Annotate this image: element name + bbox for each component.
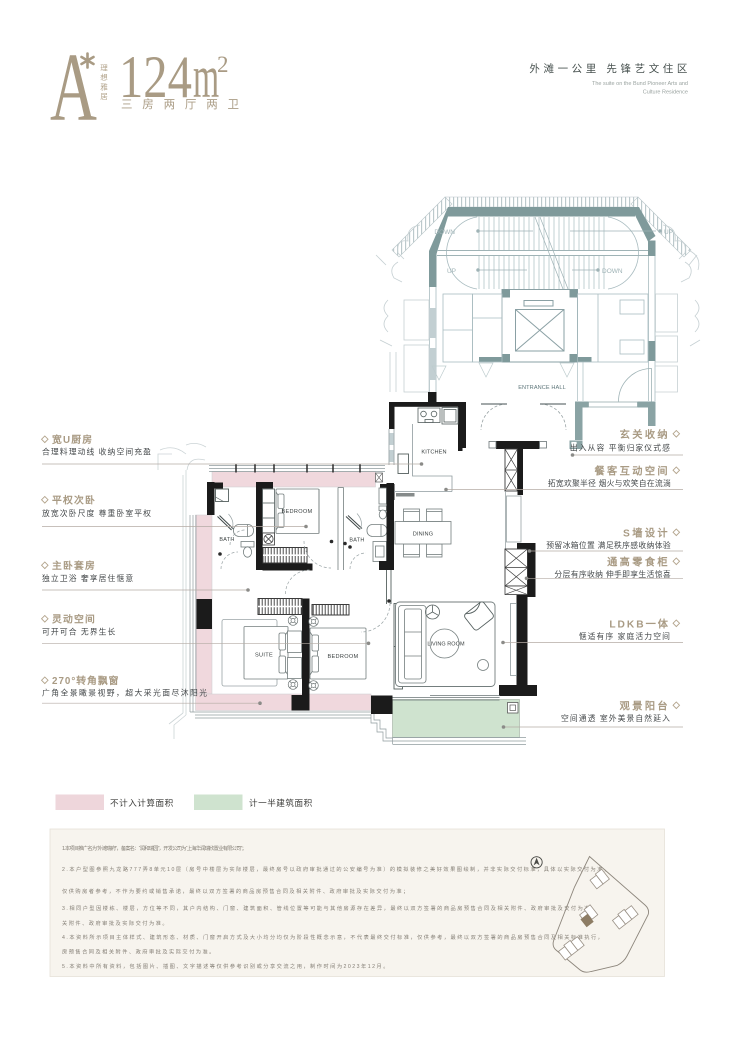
svg-text:LIVING ROOM: LIVING ROOM xyxy=(427,642,465,648)
svg-text:UP: UP xyxy=(664,229,673,236)
svg-text:合理料理动线 收纳空间充盈: 合理料理动线 收纳空间充盈 xyxy=(42,447,152,457)
svg-text:预留冰箱位置 满足秩序感收纳体验: 预留冰箱位置 满足秩序感收纳体验 xyxy=(546,540,671,550)
svg-text:3.相同户型因楼栋、楼层，方位等不同，其户内结构、门窗、建筑: 3.相同户型因楼栋、楼层，方位等不同，其户内结构、门窗、建筑面积、管线位置等可能… xyxy=(62,904,598,912)
svg-text:出入从容 平衡归家仪式感: 出入从容 平衡归家仪式感 xyxy=(570,443,671,453)
svg-text:1.本项目推广名为“外滩瑞府”，备案名：“润和瑞园”，开发公: 1.本项目推广名为“外滩瑞府”，备案名：“润和瑞园”，开发公司为“上海华润瑞欣置… xyxy=(62,844,246,852)
svg-text:独立卫浴 奢享居住惬意: 独立卫浴 奢享居住惬意 xyxy=(42,573,134,583)
svg-text:通高零食柜: 通高零食柜 xyxy=(607,556,670,569)
svg-text:ENTRANCE HALL: ENTRANCE HALL xyxy=(518,385,566,391)
svg-text:A: A xyxy=(50,33,97,141)
svg-text:理想雅居: 理想雅居 xyxy=(99,64,108,102)
svg-text:S墙设计: S墙设计 xyxy=(623,527,670,540)
svg-text:宽U厨房: 宽U厨房 xyxy=(51,433,93,446)
svg-text:外滩一公里 先锋艺文住区: 外滩一公里 先锋艺文住区 xyxy=(529,62,691,75)
svg-text:观景阳台: 观景阳台 xyxy=(620,700,670,713)
svg-text:4.本资料所示项目主体样式、建筑形态、材质、门窗开启方式及大: 4.本资料所示项目主体样式、建筑形态、材质、门窗开启方式及大小均分均仅为阶段性概… xyxy=(62,933,604,941)
svg-text:放宽次卧尺度 尊重卧室平权: 放宽次卧尺度 尊重卧室平权 xyxy=(42,508,152,518)
svg-text:BATH: BATH xyxy=(349,538,364,544)
svg-text:DOWN: DOWN xyxy=(602,268,623,275)
svg-text:SUITE: SUITE xyxy=(255,653,273,659)
svg-text:拓宽欢聚半径 烟火与欢笑自在流淌: 拓宽欢聚半径 烟火与欢笑自在流淌 xyxy=(548,478,671,488)
svg-text:2.本户型图参照九龙路777弄8单元10层（房号中楼层为实际: 2.本户型图参照九龙路777弄8单元10层（房号中楼层为实际楼层，最终房号以政府… xyxy=(62,865,611,873)
svg-text:灵动空间: 灵动空间 xyxy=(51,613,96,626)
svg-text:平权次卧: 平权次卧 xyxy=(52,494,96,507)
svg-text:KITCHEN: KITCHEN xyxy=(421,450,446,456)
svg-text:BEDROOM: BEDROOM xyxy=(327,654,358,660)
svg-text:可开可合 无界生长: 可开可合 无界生长 xyxy=(42,627,116,637)
svg-text:DINING: DINING xyxy=(413,532,433,538)
svg-text:广角全景瞰景视野，超大采光面尽沐阳光: 广角全景瞰景视野，超大采光面尽沐阳光 xyxy=(42,688,208,698)
svg-text:惬适有序 家庭活力空间: 惬适有序 家庭活力空间 xyxy=(579,631,671,641)
svg-text:不计入计算面积: 不计入计算面积 xyxy=(110,797,174,808)
svg-text:关附件、政府审批及实际交付为准。: 关附件、政府审批及实际交付为准。 xyxy=(62,919,169,927)
svg-text:主卧套房: 主卧套房 xyxy=(52,559,96,572)
svg-text:Culture Residence: Culture Residence xyxy=(643,90,688,96)
svg-text:2: 2 xyxy=(217,52,229,77)
svg-text:餐客互动空间: 餐客互动空间 xyxy=(593,465,670,478)
svg-text:The suite on the Bund Pioneer: The suite on the Bund Pioneer Arts and xyxy=(592,81,688,87)
svg-text:三房两厅两卫: 三房两厅两卫 xyxy=(121,98,249,111)
svg-text:房预售合同及相关附件、政府审批及实际交付为准。: 房预售合同及相关附件、政府审批及实际交付为准。 xyxy=(62,948,216,956)
svg-text:DOWN: DOWN xyxy=(434,229,455,236)
svg-text:BEDROOM: BEDROOM xyxy=(281,509,312,515)
svg-text:分层有序收纳 伸手即享生活惊喜: 分层有序收纳 伸手即享生活惊喜 xyxy=(554,569,671,579)
svg-text:LDKB一体: LDKB一体 xyxy=(609,618,670,631)
svg-text:270°转角飘窗: 270°转角飘窗 xyxy=(52,674,119,687)
svg-text:UP: UP xyxy=(447,268,456,275)
svg-text:5.本资料中所有资料，包括图片、插图、文字描述等仅供参考识别: 5.本资料中所有资料，包括图片、插图、文字描述等仅供参考识别或分享交流之用，制作… xyxy=(62,962,390,970)
svg-text:玄关收纳: 玄关收纳 xyxy=(620,428,670,441)
svg-text:BATH: BATH xyxy=(219,537,234,543)
svg-text:计一半建筑面积: 计一半建筑面积 xyxy=(249,797,313,808)
svg-text:空间通透 室外美景自然延入: 空间通透 室外美景自然延入 xyxy=(561,713,671,723)
svg-text:仅供购房者参考，不作为要约或销售承诺，最终以双方签署的商品房: 仅供购房者参考，不作为要约或销售承诺，最终以双方签署的商品房预售合同及相关附件、… xyxy=(62,887,410,895)
